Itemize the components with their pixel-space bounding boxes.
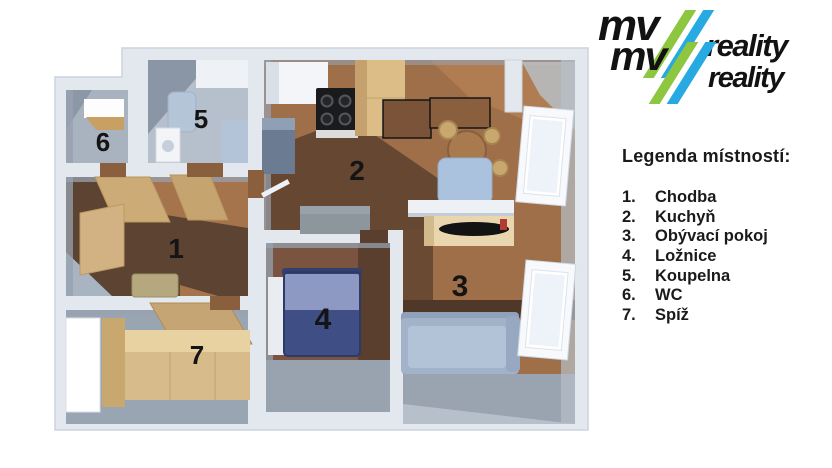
room-1-hallway [66, 175, 248, 297]
bathroom-counter [196, 60, 248, 88]
window [516, 106, 574, 206]
bathtub [168, 92, 196, 132]
legend-title: Legenda místností: [622, 146, 822, 167]
legend: Legenda místností: 1. Chodba 2. Kuchyň 3… [622, 146, 822, 325]
legend-item-label: Obývací pokoj [655, 227, 768, 246]
washing-machine-door [162, 140, 174, 152]
legend-item-label: Ložnice [655, 247, 716, 266]
legend-item-label: Chodba [655, 188, 716, 207]
door-opening [100, 163, 126, 177]
shelf-side [102, 318, 125, 407]
door-opening [360, 230, 388, 243]
decor [500, 219, 507, 230]
legend-item-label: Koupelna [655, 267, 730, 286]
logo-mv-text: mv [610, 36, 665, 77]
room-7-pantry [66, 303, 252, 424]
legend-item-number: 6. [622, 286, 655, 305]
wc-fixture [84, 99, 124, 118]
dining-chair [438, 158, 492, 204]
room-number-6: 6 [96, 127, 110, 157]
kitchen-counter [430, 98, 490, 128]
partition-wall [505, 60, 522, 112]
legend-item-number: 5. [622, 267, 655, 286]
legend-item-kuchyn: 2. Kuchyň [622, 208, 822, 228]
legend-item-number: 2. [622, 208, 655, 227]
kitchen-counter [383, 100, 431, 138]
chair [484, 128, 500, 144]
door-opening [210, 296, 240, 310]
legend-item-number: 7. [622, 306, 655, 325]
legend-list: 1. Chodba 2. Kuchyň 3. Obývací pokoj 4. … [622, 188, 822, 325]
logo-copy-front: mv reality [604, 38, 832, 146]
legend-item-koupelna: 5. Koupelna [622, 266, 822, 286]
logo-slashes-icon [664, 42, 710, 104]
bench [132, 274, 178, 297]
room-number-1: 1 [168, 233, 184, 264]
chair [492, 160, 508, 176]
legend-item-wc: 6. WC [622, 286, 822, 306]
room-number-3: 3 [452, 270, 469, 303]
legend-item-label: Spíž [655, 306, 689, 325]
room-number-5: 5 [194, 104, 208, 134]
legend-item-loznice: 4. Ložnice [622, 247, 822, 267]
pantry-door [66, 318, 100, 412]
floor-plan-image: 1 2 3 4 5 6 7 [0, 0, 600, 468]
legend-item-number: 4. [622, 247, 655, 266]
legend-item-number: 3. [622, 227, 655, 246]
wall-shelf [408, 200, 514, 215]
room-number-7: 7 [190, 340, 204, 370]
shower [222, 120, 248, 163]
tv [439, 222, 509, 236]
sofa [401, 312, 520, 374]
stove [316, 88, 358, 138]
door-opening [187, 163, 223, 177]
room-number-4: 4 [315, 303, 332, 336]
page: 1 2 3 4 5 6 7 mv reality mv reality Lege… [0, 0, 832, 468]
legend-item-obyvaci-pokoj: 3. Obývací pokoj [622, 227, 822, 247]
window [518, 260, 576, 360]
legend-item-chodba: 1. Chodba [622, 188, 822, 208]
chair [439, 121, 457, 139]
mv-reality-logo: mv reality mv reality [594, 8, 822, 116]
floor-plan: 1 2 3 4 5 6 7 [0, 0, 600, 468]
legend-item-label: Kuchyň [655, 208, 716, 227]
legend-item-spiz: 7. Spíž [622, 306, 822, 326]
legend-item-label: WC [655, 286, 683, 305]
logo-reality-text: reality [708, 64, 783, 93]
wardrobe [80, 204, 124, 275]
room-number-2: 2 [349, 155, 365, 186]
legend-item-number: 1. [622, 188, 655, 207]
